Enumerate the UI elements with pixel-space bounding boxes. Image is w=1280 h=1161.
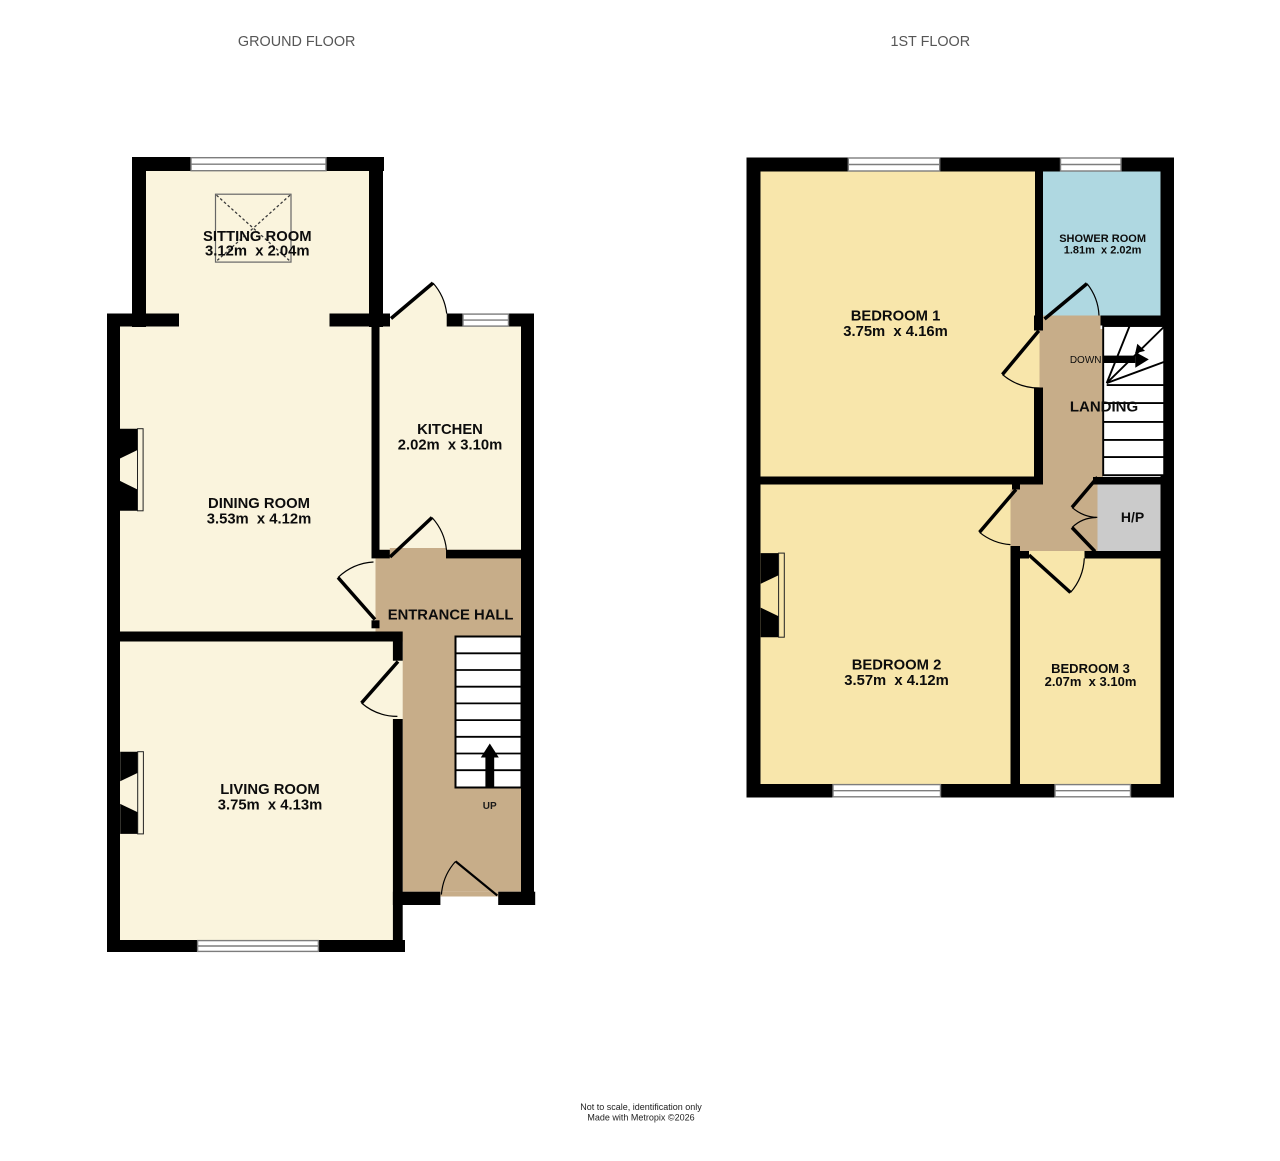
svg-text:Made with Metropix ©2026: Made with Metropix ©2026 [587,1112,694,1122]
svg-text:UP: UP [483,801,497,812]
svg-text:H/P: H/P [1121,509,1144,525]
svg-text:3.53m x 4.12m: 3.53m x 4.12m [207,512,311,528]
svg-text:2.07m x 3.10m: 2.07m x 3.10m [1045,674,1137,689]
svg-text:1.81m x 2.02m: 1.81m x 2.02m [1064,244,1142,256]
svg-text:LIVING ROOM: LIVING ROOM [220,782,319,798]
svg-text:GROUND FLOOR: GROUND FLOOR [238,34,356,50]
svg-text:3.75m x 4.13m: 3.75m x 4.13m [218,798,322,814]
svg-text:3.57m x 4.12m: 3.57m x 4.12m [844,673,948,689]
svg-text:BEDROOM 1: BEDROOM 1 [851,308,941,324]
svg-text:ENTRANCE HALL: ENTRANCE HALL [388,608,514,624]
svg-text:KITCHEN: KITCHEN [417,422,483,438]
svg-text:1ST FLOOR: 1ST FLOOR [890,34,970,50]
svg-text:SHOWER ROOM: SHOWER ROOM [1059,233,1146,245]
svg-text:DINING ROOM: DINING ROOM [208,496,310,512]
svg-text:LANDING: LANDING [1070,398,1138,415]
svg-text:3.75m x 4.16m: 3.75m x 4.16m [843,324,947,340]
svg-text:2.02m x 3.10m: 2.02m x 3.10m [398,438,502,454]
svg-text:3.12m x 2.04m: 3.12m x 2.04m [205,244,309,260]
svg-text:BEDROOM 2: BEDROOM 2 [852,657,942,673]
svg-text:Not to scale, identification o: Not to scale, identification only [580,1102,702,1112]
svg-text:SITTING ROOM: SITTING ROOM [203,229,312,245]
svg-text:DOWN: DOWN [1070,355,1102,366]
